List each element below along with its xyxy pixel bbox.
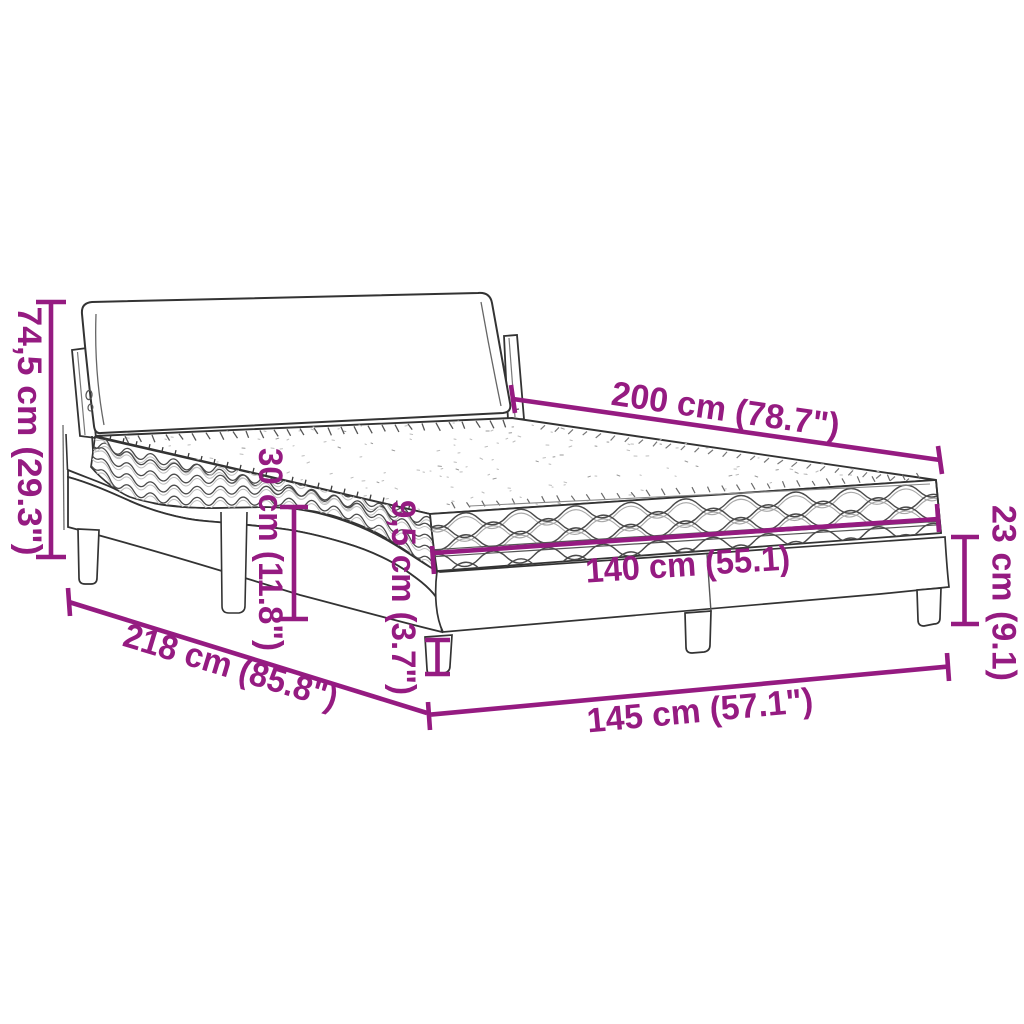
svg-text:23 cm (9.1): 23 cm (9.1) xyxy=(985,505,1023,681)
svg-text:30 cm (11.8"): 30 cm (11.8") xyxy=(251,448,289,651)
svg-text:9,5 cm (3.7"): 9,5 cm (3.7") xyxy=(384,500,422,695)
svg-text:74,5 cm (29.3"): 74,5 cm (29.3") xyxy=(10,307,48,556)
